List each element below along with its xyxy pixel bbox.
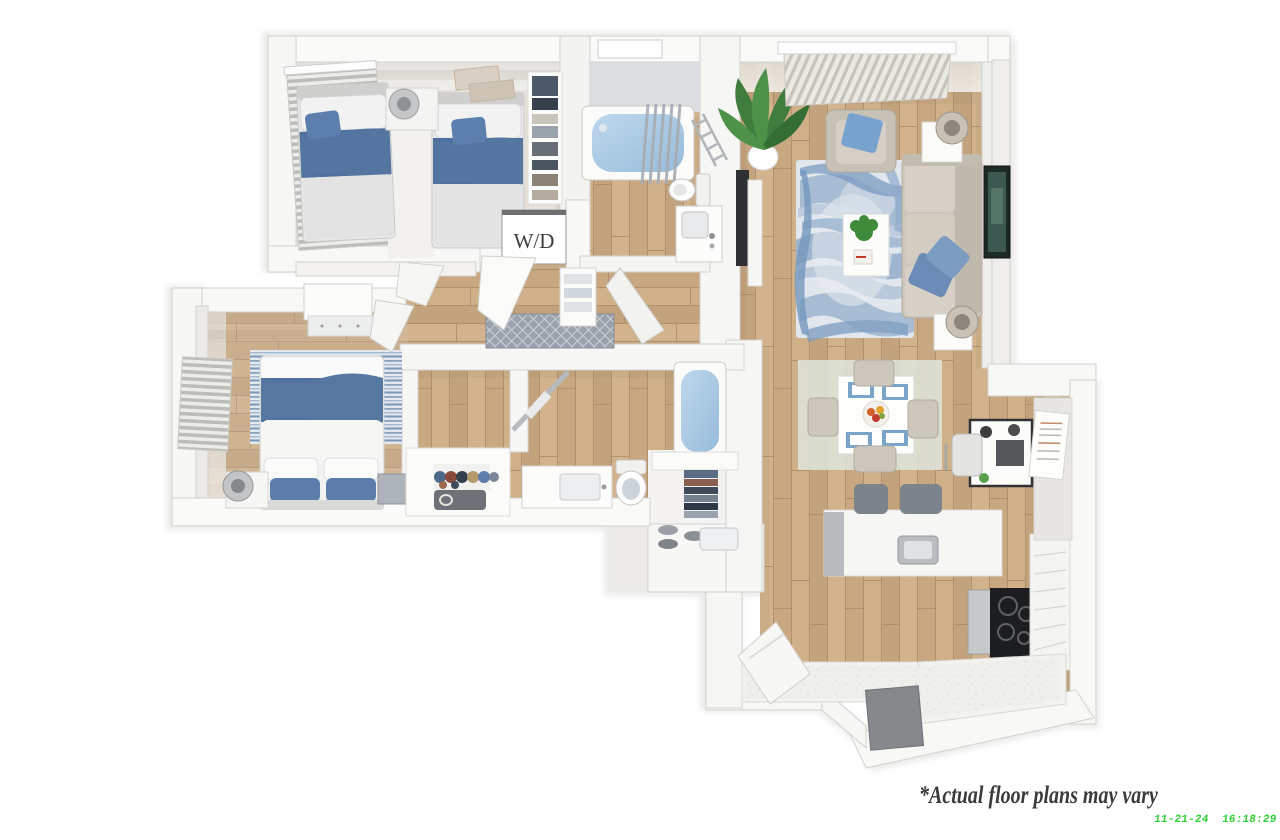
svg-text:W/D: W/D: [514, 229, 555, 253]
